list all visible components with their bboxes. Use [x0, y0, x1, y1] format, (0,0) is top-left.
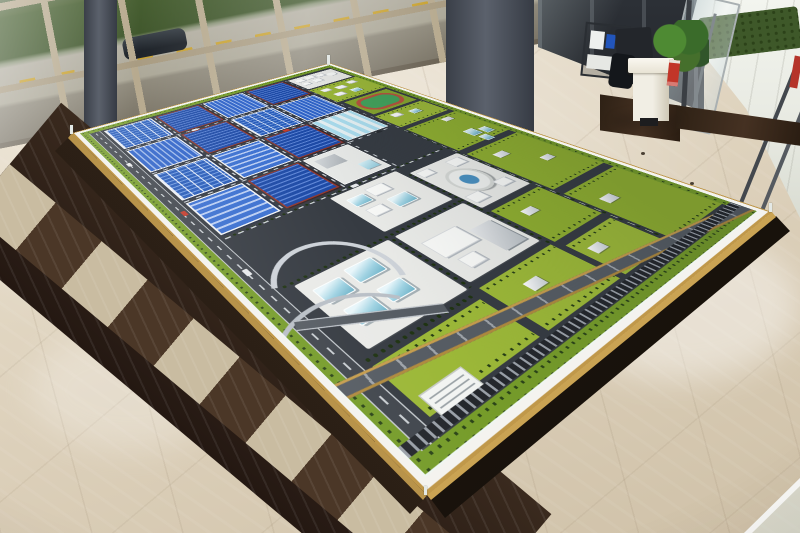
- parked-car-outside: [121, 27, 188, 61]
- podium-base: [640, 118, 658, 126]
- railing-post: [70, 125, 73, 134]
- lobby-photo: [0, 0, 800, 533]
- floor-fixing: [641, 152, 645, 155]
- leaflet-blue: [605, 34, 615, 49]
- railing-post: [424, 486, 427, 495]
- podium-top: [628, 58, 674, 73]
- podium-body: [633, 71, 669, 121]
- railing-post: [327, 55, 330, 64]
- railing-post: [769, 203, 772, 212]
- leaflet: [589, 30, 605, 49]
- model-carD: [375, 130, 383, 133]
- greeter-podium: [628, 58, 674, 126]
